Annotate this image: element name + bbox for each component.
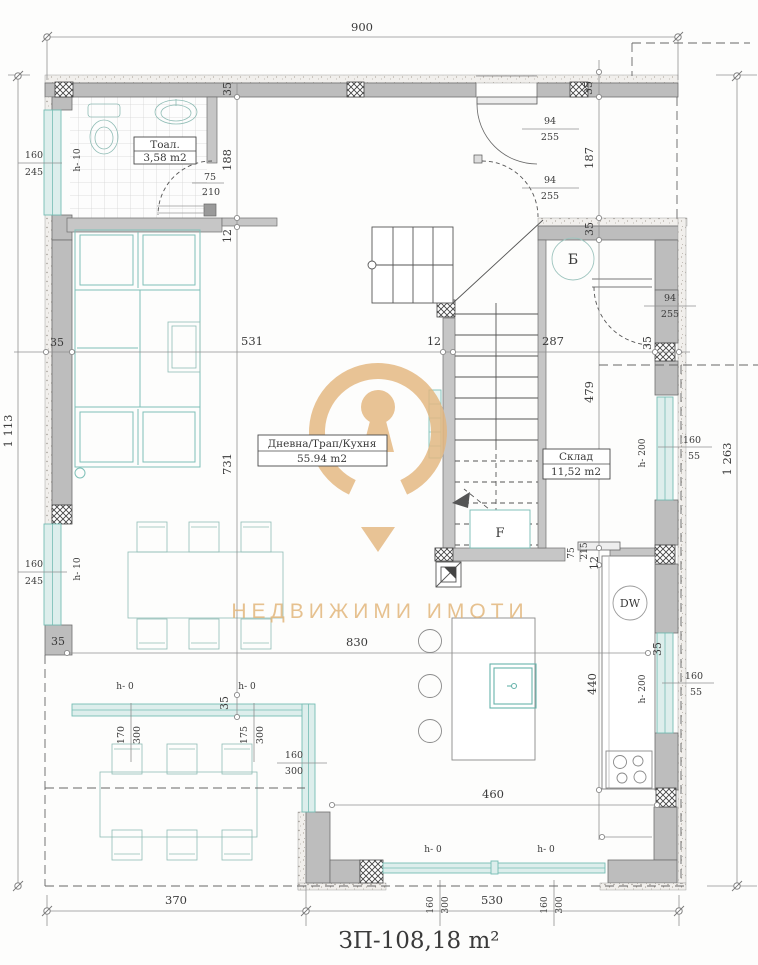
level-label: h- 200 <box>638 438 648 467</box>
shaft-symbol <box>436 562 461 587</box>
dim-overall-left: 1 113 <box>1 415 15 448</box>
window-tag-sill: 55 <box>688 451 700 462</box>
dim-living-width: 531 <box>241 334 263 348</box>
boiler-letter: Б <box>568 252 578 268</box>
window-left-top <box>44 110 61 215</box>
door-tag-height: 255 <box>661 309 679 320</box>
window-tag-width: 160 <box>683 435 701 446</box>
coffee-table <box>168 322 200 372</box>
window-tag-width: 160 <box>25 150 43 161</box>
entry-door <box>477 97 537 164</box>
level-label: h- 0 <box>424 845 442 855</box>
glazing-tag-height: 300 <box>255 726 266 744</box>
dim-porch-depth: 187 <box>582 147 596 169</box>
watermark-text: НЕДВИЖИМИ ИМОТИ <box>231 600 528 623</box>
dim-wall-12: 12 <box>427 335 441 348</box>
bar-stool-icon <box>419 720 442 743</box>
dim-wall-12: 12 <box>221 229 234 243</box>
storage-name: Склад <box>559 451 594 463</box>
dim-wall-35: 35 <box>641 336 654 350</box>
glass-wall-terrace-side <box>302 704 315 812</box>
watermark-pointer-icon <box>361 527 395 552</box>
door-tag-height: 255 <box>541 191 559 202</box>
watermark-keyhole-icon <box>361 390 395 424</box>
bar-stool-icon <box>419 630 442 653</box>
glazing-tag-width: 160 <box>285 750 303 761</box>
dim-stair-width: 287 <box>542 334 564 348</box>
glass-door-bottom <box>383 861 605 874</box>
dim-wall-35: 35 <box>51 635 65 648</box>
dim-wall-35: 35 <box>582 81 595 95</box>
walls-layer <box>45 75 687 890</box>
window-tag-width: 160 <box>685 671 703 682</box>
level-label: h- 0 <box>238 682 256 692</box>
watermark: НЕДВИЖИМИ ИМОТИ <box>231 351 528 623</box>
level-label: h- 0 <box>116 682 134 692</box>
room-label-living: Дневна/Трап/Кухня 55.94 m2 <box>258 435 387 466</box>
glazing-tag-width: 160 <box>540 896 550 913</box>
window-left-bottom <box>44 524 61 625</box>
dishwasher-letter: DW <box>620 597 641 610</box>
vestibule-door <box>474 155 538 217</box>
window-tag-sill: 245 <box>25 167 43 178</box>
level-label: h- 200 <box>638 674 648 703</box>
dim-wall-35: 35 <box>221 82 234 96</box>
plan-title: ЗП-108,18 m² <box>339 928 500 954</box>
door-tag-width: 75 <box>204 172 216 183</box>
door-tag-height: 255 <box>541 132 559 143</box>
glazing-tag-height: 300 <box>555 896 565 913</box>
door-tag-width: 75 <box>567 547 577 559</box>
toilet-name: Тоал. <box>150 139 180 151</box>
dim-wall-35: 35 <box>218 696 231 710</box>
floorplan-page: НЕДВИЖИМИ ИМОТИ Тоал. 3,58 m2 Дневна/Тра… <box>0 0 758 965</box>
glazing-tag-height: 300 <box>285 766 303 777</box>
floorplan-drawing: НЕДВИЖИМИ ИМОТИ Тоал. 3,58 m2 Дневна/Тра… <box>0 0 758 965</box>
glazing-tag-height: 300 <box>132 726 143 744</box>
storage-door-top <box>592 279 652 345</box>
storage-area: 11,52 m2 <box>551 466 601 478</box>
dim-kitchen-height: 440 <box>585 673 599 695</box>
dim-toilet-height: 188 <box>220 149 234 171</box>
window-tag-width: 160 <box>25 559 43 570</box>
door-tag-height: 215 <box>580 542 590 559</box>
dim-wall-35: 35 <box>583 222 596 236</box>
dim-storage-height: 479 <box>582 381 596 403</box>
dim-overall-top: 900 <box>351 20 373 34</box>
level-label: h- 10 <box>73 148 83 171</box>
door-tag-width: 94 <box>544 116 556 127</box>
window-tag-sill: 55 <box>690 687 702 698</box>
window-tag-sill: 245 <box>25 576 43 587</box>
dim-interior-830: 830 <box>346 635 368 649</box>
glazing-tag-height: 300 <box>441 896 451 913</box>
door-tag-width: 94 <box>544 175 556 186</box>
dim-overall-right: 1 263 <box>720 443 734 476</box>
dim-interior-460: 460 <box>482 787 504 801</box>
door-tag-height: 210 <box>202 187 220 198</box>
glazing-tag-width: 175 <box>239 726 250 744</box>
fridge-letter: F <box>495 526 504 541</box>
living-name: Дневна/Трап/Кухня <box>268 438 377 450</box>
level-label: h- 10 <box>73 557 83 580</box>
window-right-top <box>657 397 673 500</box>
level-label: h- 0 <box>537 845 555 855</box>
dim-wall-35: 35 <box>651 642 664 656</box>
glazing-tag-width: 160 <box>426 896 436 913</box>
kitchen-island <box>419 618 537 760</box>
kitchen-counter <box>602 556 655 789</box>
glass-wall-terrace-front <box>72 704 310 716</box>
bar-stool-icon <box>419 675 442 698</box>
dim-bottom-right: 530 <box>481 893 503 907</box>
dining-table-indoor <box>128 522 283 649</box>
dim-bottom-left: 370 <box>165 893 187 907</box>
door-tag-width: 94 <box>664 293 676 304</box>
dining-table-terrace <box>100 744 257 860</box>
floor-lamp-icon <box>75 468 85 478</box>
dim-living-height: 731 <box>220 453 234 475</box>
dim-wall-35: 35 <box>50 336 64 349</box>
room-label-storage: Склад 11,52 m2 <box>543 449 610 479</box>
living-area: 55.94 m2 <box>297 453 347 465</box>
sofa <box>75 230 200 478</box>
glazing-tag-width: 170 <box>116 726 127 744</box>
toilet-area: 3,58 m2 <box>143 152 186 164</box>
room-label-toilet: Тоал. 3,58 m2 <box>134 137 196 164</box>
